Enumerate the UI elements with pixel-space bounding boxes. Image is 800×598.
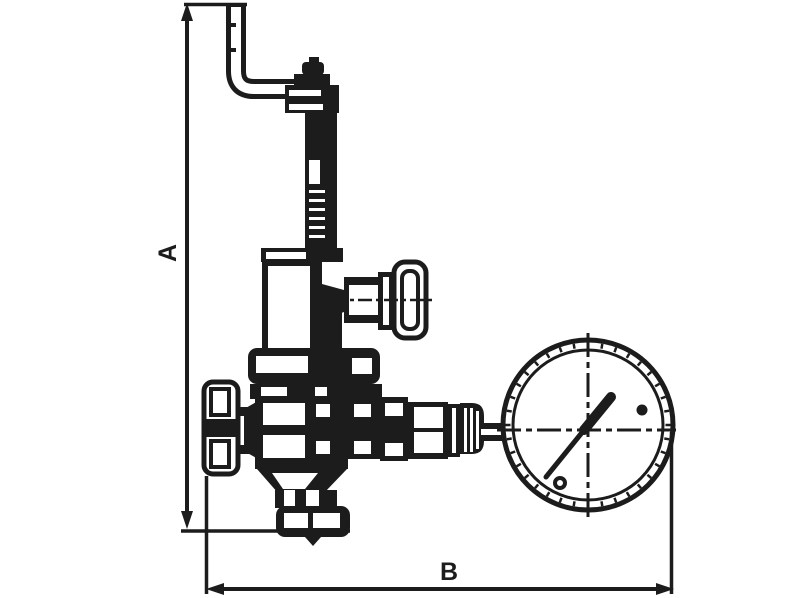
handwheel <box>202 382 258 474</box>
dim-b-label: B <box>440 558 458 586</box>
pressure-gauge <box>497 333 676 517</box>
dim-b-arrow-left <box>206 583 224 595</box>
pipe-weld-mark <box>231 48 236 52</box>
dim-a-arrow-down <box>181 511 193 529</box>
outlet-fitting <box>348 397 503 461</box>
adjusting-cap <box>285 57 339 113</box>
pipe-weld-mark <box>231 23 236 27</box>
drawing-canvas: A <box>0 0 800 598</box>
gauge-needle-tail-ring <box>555 478 565 488</box>
dim-a-label: A <box>154 244 182 262</box>
lever-pipe <box>226 5 303 89</box>
drain-tip <box>305 537 321 546</box>
bottom-neck <box>275 490 337 508</box>
adjusting-rod <box>305 112 337 253</box>
valve-assembly <box>202 5 503 546</box>
body-lower-cone <box>257 469 347 493</box>
housing-flange <box>248 348 380 384</box>
bottom-cap <box>276 506 350 546</box>
body-top-plate <box>250 384 382 399</box>
valve-dimension-drawing: A <box>0 0 800 598</box>
valve-body <box>255 397 348 469</box>
gauge-dial-screw <box>637 405 648 416</box>
